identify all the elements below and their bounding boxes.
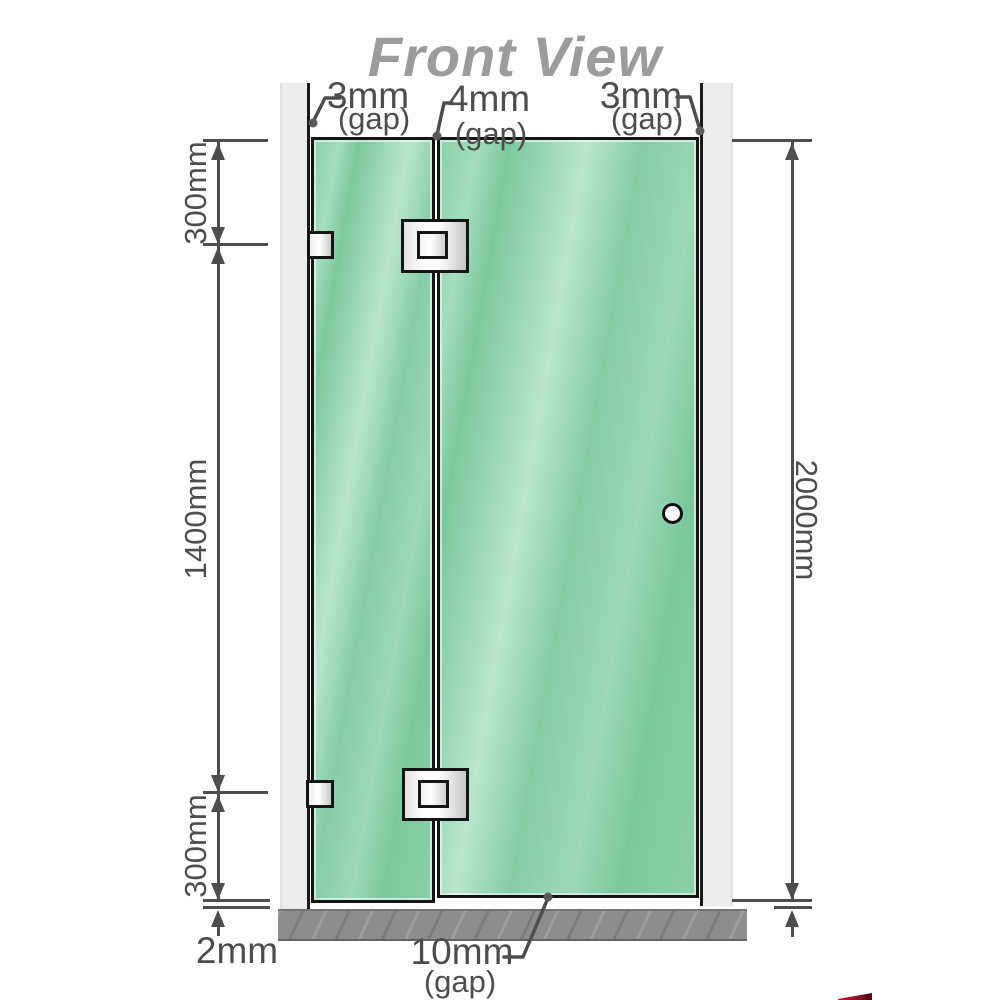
arrow-down-1400 <box>211 775 225 792</box>
hinge-bottom <box>402 768 469 821</box>
arrow-up-1400 <box>211 247 225 264</box>
logo-fragment <box>838 993 872 1000</box>
dim-label-300-top: 300mm <box>181 138 211 248</box>
gap-note-top-middle: (gap) <box>431 118 551 149</box>
wall-channel-right <box>700 83 733 906</box>
dim-label-2000: 2000mm <box>791 450 821 590</box>
dim-tick-2mm-upper <box>203 899 270 902</box>
arrow-up-2000 <box>785 143 799 160</box>
gap-note-top-right: (gap) <box>587 103 707 134</box>
hinge-top-knuckle <box>417 231 448 259</box>
arrow-down-300-bottom <box>211 883 225 900</box>
door-knob <box>662 503 683 524</box>
dim-tick-2000-bottom <box>732 899 812 902</box>
dim-label-1400: 1400mm <box>181 454 211 584</box>
hinge-bottom-knuckle <box>418 780 449 808</box>
arrow-up-300-bottom <box>211 795 225 812</box>
gap-note-bottom: (gap) <box>390 966 530 997</box>
gap-label-top-middle: 4mm <box>429 80 549 117</box>
glass-panel-door <box>437 137 699 898</box>
dim-tick-2000-top <box>732 139 812 142</box>
gap-note-top-left: (gap) <box>314 103 434 134</box>
wall-bracket-bottom <box>306 780 334 808</box>
wall-bracket-top <box>307 231 334 259</box>
dim-stem-1400 <box>217 246 220 792</box>
dim-tick-2000-floor <box>774 906 812 909</box>
arrow-down-2000 <box>785 883 799 900</box>
dim-tick-2mm-lower <box>203 906 270 909</box>
arrow-down-300-top <box>211 227 225 244</box>
arrow-up-300-top <box>211 143 225 160</box>
diagram-canvas: Front View 300mm 1400mm 300mm 2000mm 2mm… <box>0 0 1000 1000</box>
dim-label-2mm: 2mm <box>177 932 297 969</box>
hinge-top <box>401 219 469 273</box>
dim-stem-2000-floor <box>791 914 794 937</box>
dim-label-300-bottom: 300mm <box>181 791 211 901</box>
